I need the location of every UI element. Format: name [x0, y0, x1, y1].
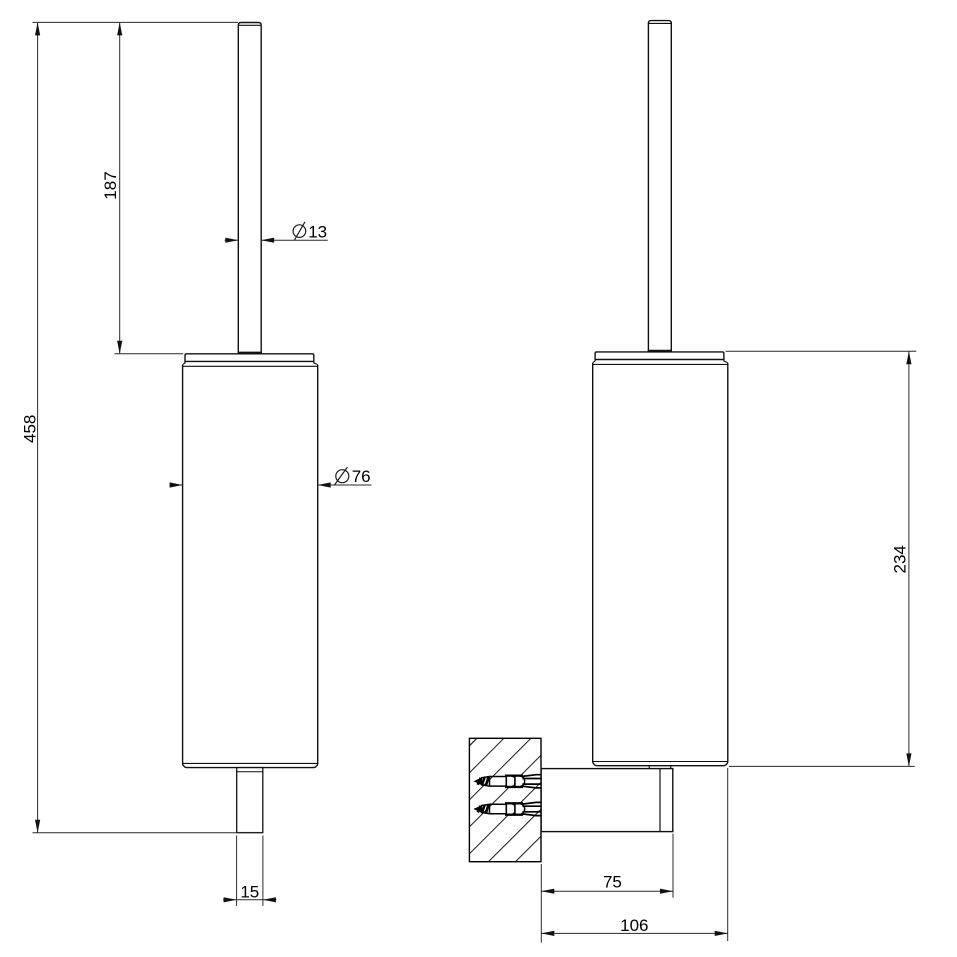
svg-text:106: 106 — [620, 916, 648, 935]
svg-text:75: 75 — [603, 873, 622, 892]
svg-text:234: 234 — [891, 545, 910, 573]
svg-text:187: 187 — [101, 171, 120, 199]
svg-text:15: 15 — [240, 882, 259, 901]
svg-text:13: 13 — [308, 222, 327, 241]
svg-text:458: 458 — [20, 415, 39, 443]
svg-text:76: 76 — [352, 467, 371, 486]
